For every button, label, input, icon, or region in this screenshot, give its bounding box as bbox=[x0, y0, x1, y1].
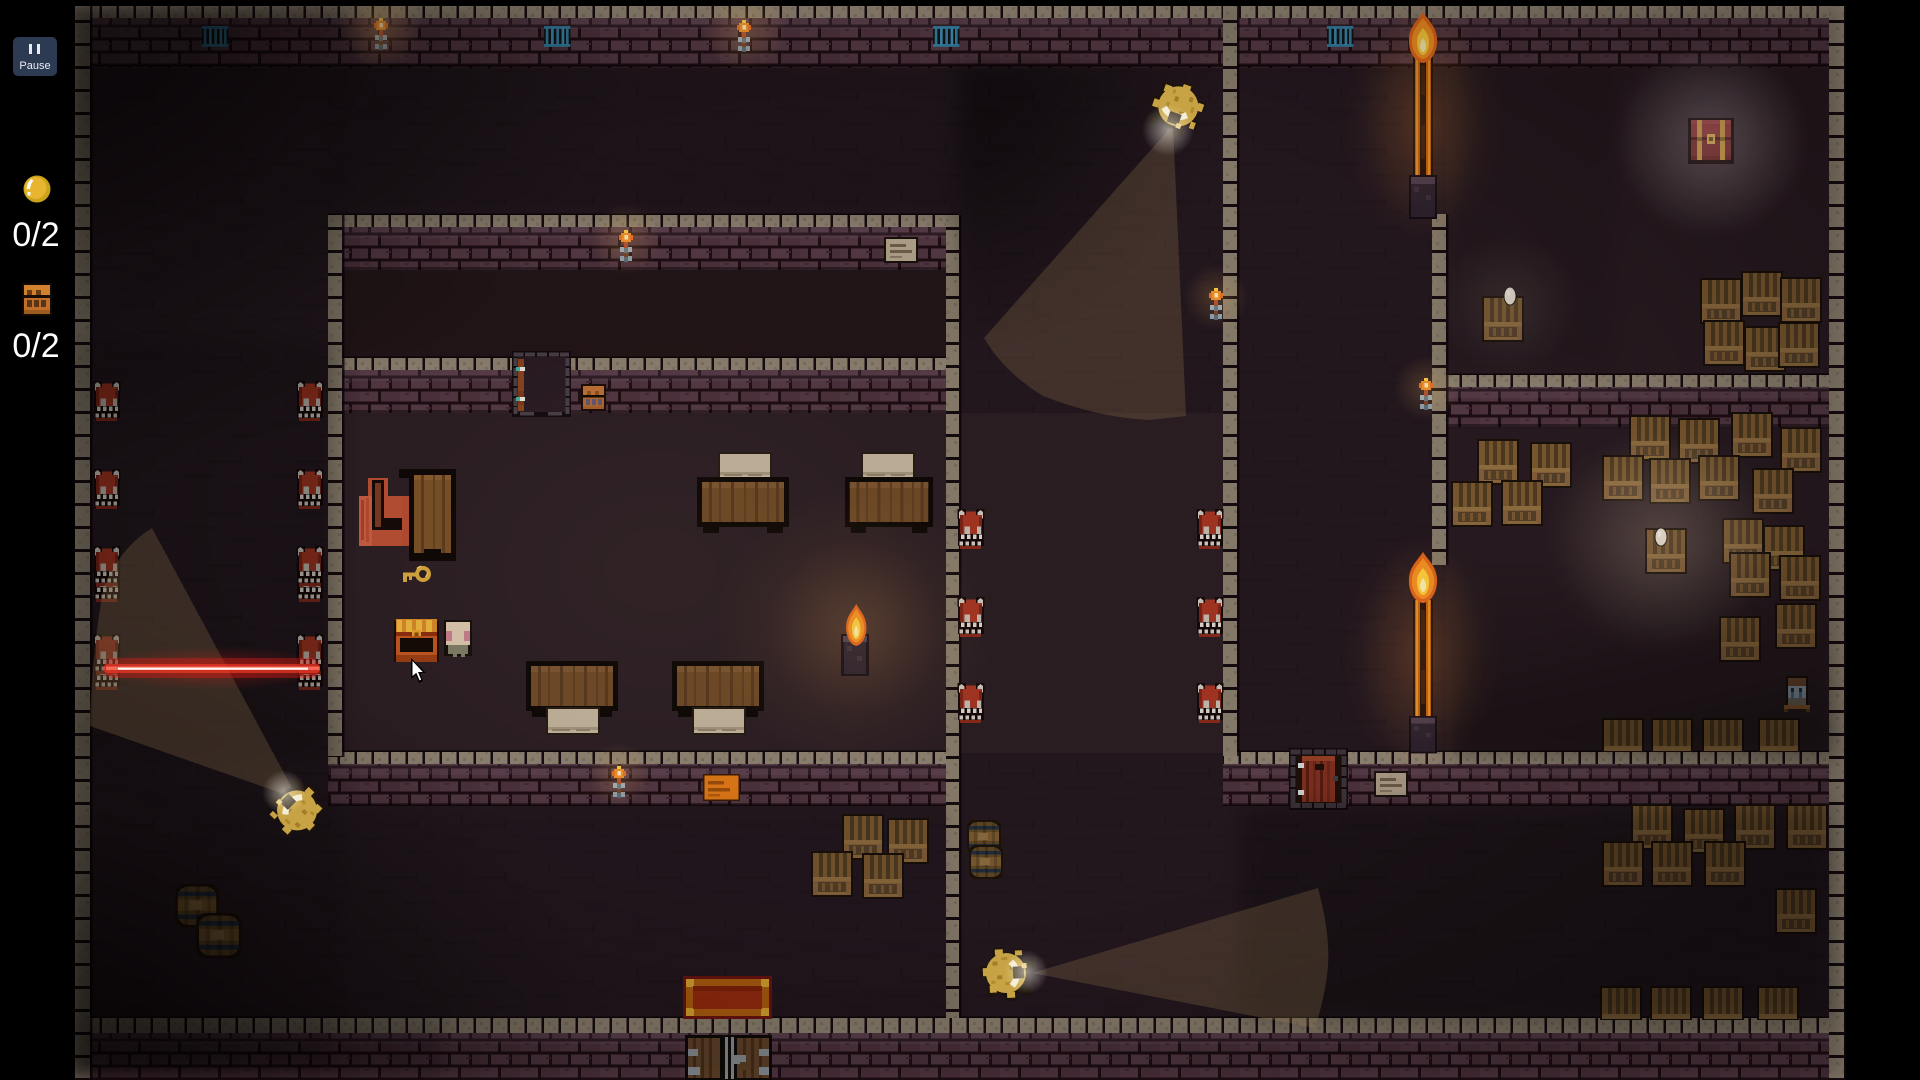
svg-text:0/2: 0/2 bbox=[12, 327, 59, 365]
svg-text:Pause: Pause bbox=[19, 60, 50, 72]
svg-text:0/2: 0/2 bbox=[12, 216, 59, 254]
